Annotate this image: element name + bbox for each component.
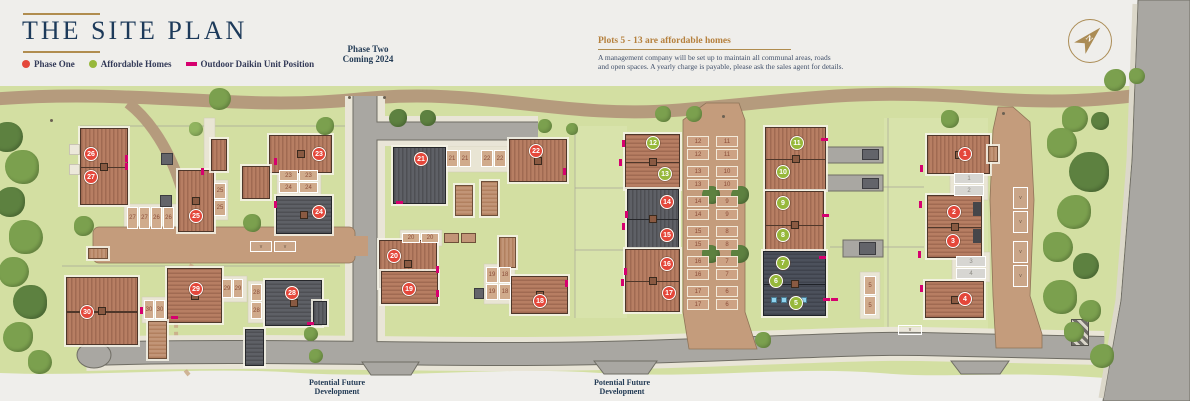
house [925, 281, 984, 318]
parking-bay-21: 21 [459, 150, 471, 167]
plot-marker-11: 11 [790, 136, 804, 150]
tree-icon [1079, 300, 1101, 322]
parking-bay-10: 10 [716, 166, 738, 177]
tree-icon [566, 123, 578, 135]
tree-icon [13, 285, 47, 319]
tree-icon [755, 332, 771, 348]
parking-bay-7: 7 [716, 256, 738, 267]
plot-marker-2: 2 [947, 205, 961, 219]
plot-marker-10: 10 [776, 165, 790, 179]
daikin-unit [821, 138, 828, 141]
plot-marker-1: 1 [958, 147, 972, 161]
parking-bay-26: 26 [151, 207, 162, 229]
parking-bay-18: 18 [499, 284, 511, 300]
bin-feature [862, 149, 879, 160]
tree-icon [0, 122, 23, 152]
chimney-icon [300, 211, 308, 219]
parking-bay-23: 23 [279, 170, 298, 181]
garage-feature [444, 233, 459, 243]
house [80, 128, 128, 205]
parking-bay-27: 27 [127, 207, 138, 229]
daikin-unit [831, 298, 838, 301]
plot-marker-21: 21 [414, 152, 428, 166]
parking-bay-27: 27 [139, 207, 150, 229]
tree-icon [243, 214, 261, 232]
parking-bay-12: 12 [687, 149, 709, 160]
chimney-icon [100, 163, 108, 171]
tree-icon [209, 88, 231, 110]
parking-bay-25: 25 [214, 183, 226, 199]
plot-marker-15: 15 [660, 228, 674, 242]
daikin-unit [307, 322, 314, 325]
tree-icon [1069, 152, 1109, 192]
parking-bay-16: 16 [687, 269, 709, 280]
parking-bay-6: 6 [716, 299, 738, 310]
plot-marker-7: 7 [776, 256, 790, 270]
dot-feature [348, 96, 351, 99]
plot-marker-22: 22 [529, 144, 543, 158]
tree-icon [1104, 69, 1126, 91]
legend-dot-icon [22, 60, 30, 68]
daikin-unit [140, 307, 143, 314]
tree-icon [1129, 68, 1145, 84]
house [499, 237, 516, 268]
patio-feature [69, 164, 80, 175]
daikin-unit [625, 211, 628, 218]
parking-bay-21: 21 [446, 150, 458, 167]
plot-marker-23: 23 [312, 147, 326, 161]
windark-feature [973, 202, 981, 216]
plot-marker-4: 4 [958, 292, 972, 306]
house [313, 301, 327, 325]
daikin-unit [274, 201, 277, 208]
daikin-unit [396, 201, 403, 204]
parking-bay-29: 29 [222, 279, 232, 298]
parking-bay-15: 15 [687, 239, 709, 250]
parking-bay-18: 18 [499, 267, 511, 283]
tree-icon [389, 109, 407, 127]
daikin-unit [565, 280, 568, 287]
daikin-unit [919, 201, 922, 208]
visitor-parking-bay: v [1013, 211, 1028, 233]
tree-icon [5, 150, 39, 184]
gold-rule-top [23, 13, 100, 15]
daikin-unit [436, 290, 439, 297]
parking-bay-20: 20 [421, 233, 439, 243]
bin-feature [474, 288, 484, 299]
daikin-unit [822, 214, 829, 217]
parking-bay-22: 22 [494, 150, 506, 167]
plot-marker-26: 26 [84, 147, 98, 161]
page-title: THE SITE PLAN [22, 16, 247, 46]
phase-two-label: Phase Two Coming 2024 [322, 44, 414, 64]
plot-marker-28: 28 [285, 286, 299, 300]
house [988, 146, 998, 162]
parking-bay-11: 11 [716, 149, 738, 160]
dot-feature [50, 119, 53, 122]
tree-icon [686, 106, 702, 122]
daikin-unit [171, 316, 178, 319]
chimney-icon [290, 299, 298, 307]
windark-feature [973, 229, 981, 243]
visitor-parking-bay: v [274, 241, 296, 252]
parking-bay-14: 14 [687, 196, 709, 207]
parking-bay-13: 13 [687, 179, 709, 190]
daikin-unit [624, 268, 627, 275]
daikin-unit [920, 165, 923, 172]
daikin-unit [125, 155, 128, 162]
legend-label: Outdoor Daikin Unit Position [201, 59, 315, 69]
parking-bay-6: 6 [716, 286, 738, 297]
daikin-unit [819, 256, 826, 259]
dot-feature [722, 115, 725, 118]
daikin-unit [823, 298, 830, 301]
chimney-icon [192, 197, 200, 205]
parking-bay-28: 28 [251, 284, 262, 301]
parking-bay-11: 11 [716, 136, 738, 147]
house [211, 139, 227, 171]
daikin-unit [621, 279, 624, 286]
tree-icon [1043, 232, 1073, 262]
parking-bay-10: 10 [716, 179, 738, 190]
plot-marker-3: 3 [946, 234, 960, 248]
bin-feature [161, 153, 173, 165]
parking-bay-30: 30 [155, 300, 165, 319]
management-note: A management company will be set up to m… [598, 54, 858, 71]
plot-marker-5: 5 [789, 296, 803, 310]
legend: Phase OneAffordable HomesOutdoor Daikin … [22, 59, 314, 69]
patio-feature [69, 144, 80, 155]
house [455, 185, 473, 216]
parking-bay-22: 22 [481, 150, 493, 167]
parking-bay-14: 14 [687, 209, 709, 220]
plot-marker-18: 18 [533, 294, 547, 308]
plot-marker-16: 16 [660, 257, 674, 271]
tree-icon [538, 119, 552, 133]
chimney-icon [649, 277, 657, 285]
tree-icon [420, 110, 436, 126]
daikin-unit [918, 251, 921, 258]
tree-icon [1091, 112, 1109, 130]
visitor-parking-bay: v [1013, 187, 1028, 209]
tree-icon [941, 110, 959, 128]
chimney-icon [792, 155, 800, 163]
tree-icon [1047, 128, 1077, 158]
phase-two-line2: Coming 2024 [322, 54, 414, 64]
house [66, 277, 138, 345]
legend-item: Phase One [22, 59, 75, 69]
bin-feature [160, 195, 172, 207]
daikin-unit [436, 266, 439, 273]
future-development-label-1: Potential Future Development [272, 378, 402, 396]
plot-marker-30: 30 [80, 305, 94, 319]
parking-bay-7: 7 [716, 269, 738, 280]
daikin-unit [274, 158, 277, 165]
chimney-icon [98, 307, 106, 315]
daikin-unit [201, 168, 204, 175]
legend-label: Phase One [34, 59, 75, 69]
tree-icon [304, 327, 318, 341]
parking-bay-5: 5 [864, 296, 876, 315]
parking-bay-16: 16 [687, 256, 709, 267]
plot-marker-17: 17 [662, 286, 676, 300]
plot-marker-6: 6 [769, 274, 783, 288]
dot-feature [383, 96, 386, 99]
tree-icon [1043, 280, 1077, 314]
tree-icon [1057, 195, 1091, 229]
garage-feature [461, 233, 476, 243]
gold-rule-bottom [23, 51, 100, 53]
parking-bay-24: 24 [279, 182, 298, 193]
plot-marker-27: 27 [84, 170, 98, 184]
house [88, 248, 108, 259]
chimney-icon [404, 260, 412, 268]
tree-icon [0, 187, 25, 217]
visitor-parking-bay: v [898, 325, 922, 335]
parking-bay-17: 17 [687, 286, 709, 297]
parking-bay-25: 25 [214, 200, 226, 216]
plot-marker-13: 13 [658, 167, 672, 181]
daikin-unit [125, 163, 128, 170]
affordable-heading: Plots 5 - 13 are affordable homes [598, 36, 858, 46]
parking-bay-19: 19 [486, 267, 498, 283]
future-development-label-2: Potential Future Development [557, 378, 687, 396]
winblue-feature [771, 297, 777, 303]
plot-marker-24: 24 [312, 205, 326, 219]
phase-two-line1: Phase Two [322, 44, 414, 54]
visitor-parking-bay: v [1013, 265, 1028, 287]
bin-feature [862, 178, 879, 189]
house [765, 191, 824, 258]
parking-bay-26: 26 [163, 207, 174, 229]
legend-item: Affordable Homes [89, 59, 172, 69]
tree-icon [28, 350, 52, 374]
plot-marker-9: 9 [776, 196, 790, 210]
tree-icon [655, 106, 671, 122]
legend-rect-icon [186, 62, 197, 66]
winblue-feature [781, 297, 787, 303]
tree-icon [0, 257, 29, 287]
parking-bay-8: 8 [716, 239, 738, 250]
parking-bay-17: 17 [687, 299, 709, 310]
compass-icon: N [1068, 19, 1112, 63]
legend-dot-icon [89, 60, 97, 68]
house [245, 329, 264, 366]
plot-marker-12: 12 [646, 136, 660, 150]
visitor-parking-bay: v [250, 241, 272, 252]
chimney-icon [951, 223, 959, 231]
house [242, 166, 270, 199]
plot-marker-20: 20 [387, 249, 401, 263]
parking-bay-30: 30 [144, 300, 154, 319]
house [148, 321, 167, 359]
daikin-unit [622, 140, 625, 147]
parking-bay-12: 12 [687, 136, 709, 147]
tree-icon [1073, 253, 1099, 279]
parking-bay-8: 8 [716, 226, 738, 237]
chimney-icon [649, 158, 657, 166]
daikin-unit [563, 168, 566, 175]
legend-item: Outdoor Daikin Unit Position [186, 59, 315, 69]
parking-bay-9: 9 [716, 196, 738, 207]
parking-bay-1: 1 [954, 173, 984, 184]
daikin-unit [619, 159, 622, 166]
affordable-underline [598, 49, 791, 50]
tree-icon [3, 322, 33, 352]
bin-feature [859, 242, 876, 255]
parking-bay-15: 15 [687, 226, 709, 237]
tree-icon [1064, 322, 1084, 342]
chimney-icon [791, 280, 799, 288]
dot-feature [1002, 112, 1005, 115]
plot-marker-25: 25 [189, 209, 203, 223]
plot-marker-14: 14 [660, 195, 674, 209]
parking-bay-28: 28 [251, 302, 262, 319]
site-plan-page: 1212131314141515161617171111101099887766… [0, 0, 1190, 401]
plot-marker-8: 8 [776, 228, 790, 242]
parking-bay-20: 20 [402, 233, 420, 243]
parking-bay-24: 24 [299, 182, 318, 193]
parking-bay-2: 2 [954, 185, 984, 196]
parking-bay-9: 9 [716, 209, 738, 220]
tree-icon [316, 117, 334, 135]
affordable-note: Plots 5 - 13 are affordable homes A mana… [598, 36, 858, 71]
tree-icon [309, 349, 323, 363]
plot-marker-19: 19 [402, 282, 416, 296]
tree-icon [74, 216, 94, 236]
chimney-icon [297, 150, 305, 158]
parking-bay-29: 29 [233, 279, 243, 298]
house [481, 181, 498, 216]
tree-icon [189, 122, 203, 136]
parking-bay-23: 23 [299, 170, 318, 181]
legend-label: Affordable Homes [101, 59, 172, 69]
chimney-icon [649, 215, 657, 223]
parking-bay-19: 19 [486, 284, 498, 300]
chimney-icon [791, 221, 799, 229]
parking-bay-4: 4 [956, 268, 986, 279]
tree-icon [9, 220, 43, 254]
daikin-unit [622, 223, 625, 230]
parking-bay-13: 13 [687, 166, 709, 177]
daikin-unit [920, 285, 923, 292]
parking-bay-3: 3 [956, 256, 986, 267]
visitor-parking-bay: v [1013, 241, 1028, 263]
plot-marker-29: 29 [189, 282, 203, 296]
tree-icon [1090, 344, 1114, 368]
parking-bay-5: 5 [864, 276, 876, 295]
